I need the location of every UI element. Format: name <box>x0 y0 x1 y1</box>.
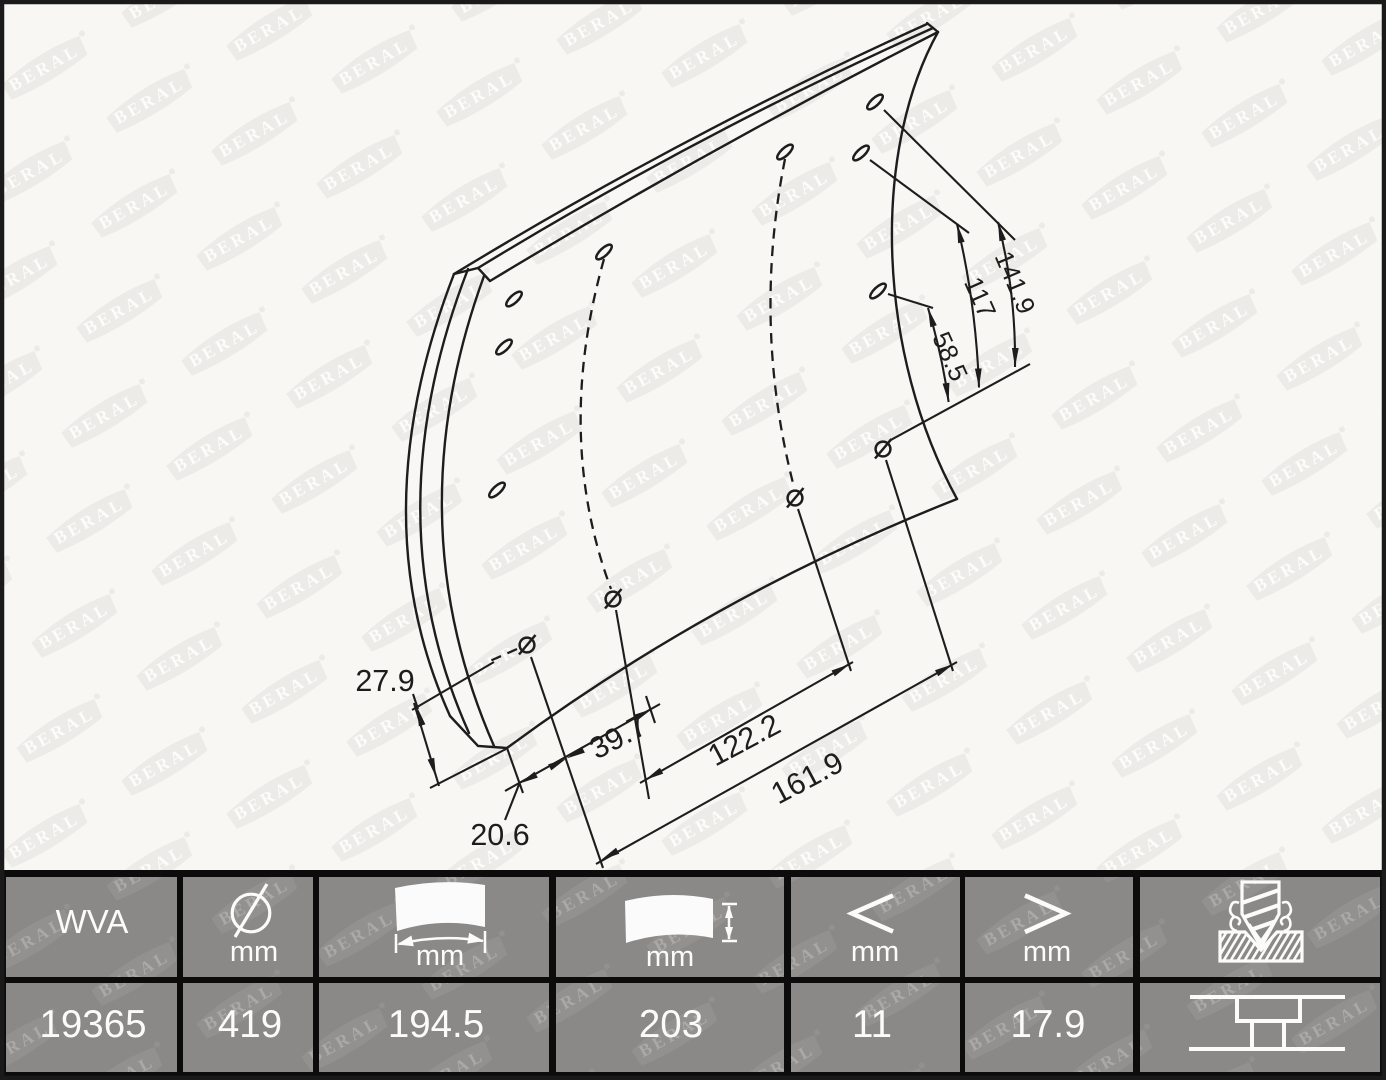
svg-text:194.5: 194.5 <box>388 1003 484 1046</box>
svg-text:17.9: 17.9 <box>1011 1003 1086 1046</box>
svg-text:mm: mm <box>1023 936 1071 968</box>
svg-text:27.9: 27.9 <box>355 664 414 698</box>
svg-text:mm: mm <box>646 941 694 973</box>
svg-text:203: 203 <box>639 1003 703 1046</box>
svg-text:mm: mm <box>230 936 278 968</box>
svg-text:20.6: 20.6 <box>470 818 529 852</box>
svg-text:mm: mm <box>416 940 464 972</box>
svg-text:mm: mm <box>851 936 899 968</box>
svg-text:419: 419 <box>218 1003 282 1046</box>
svg-text:11: 11 <box>852 1003 892 1046</box>
svg-text:WVA: WVA <box>56 903 129 940</box>
svg-text:19365: 19365 <box>39 1003 146 1046</box>
